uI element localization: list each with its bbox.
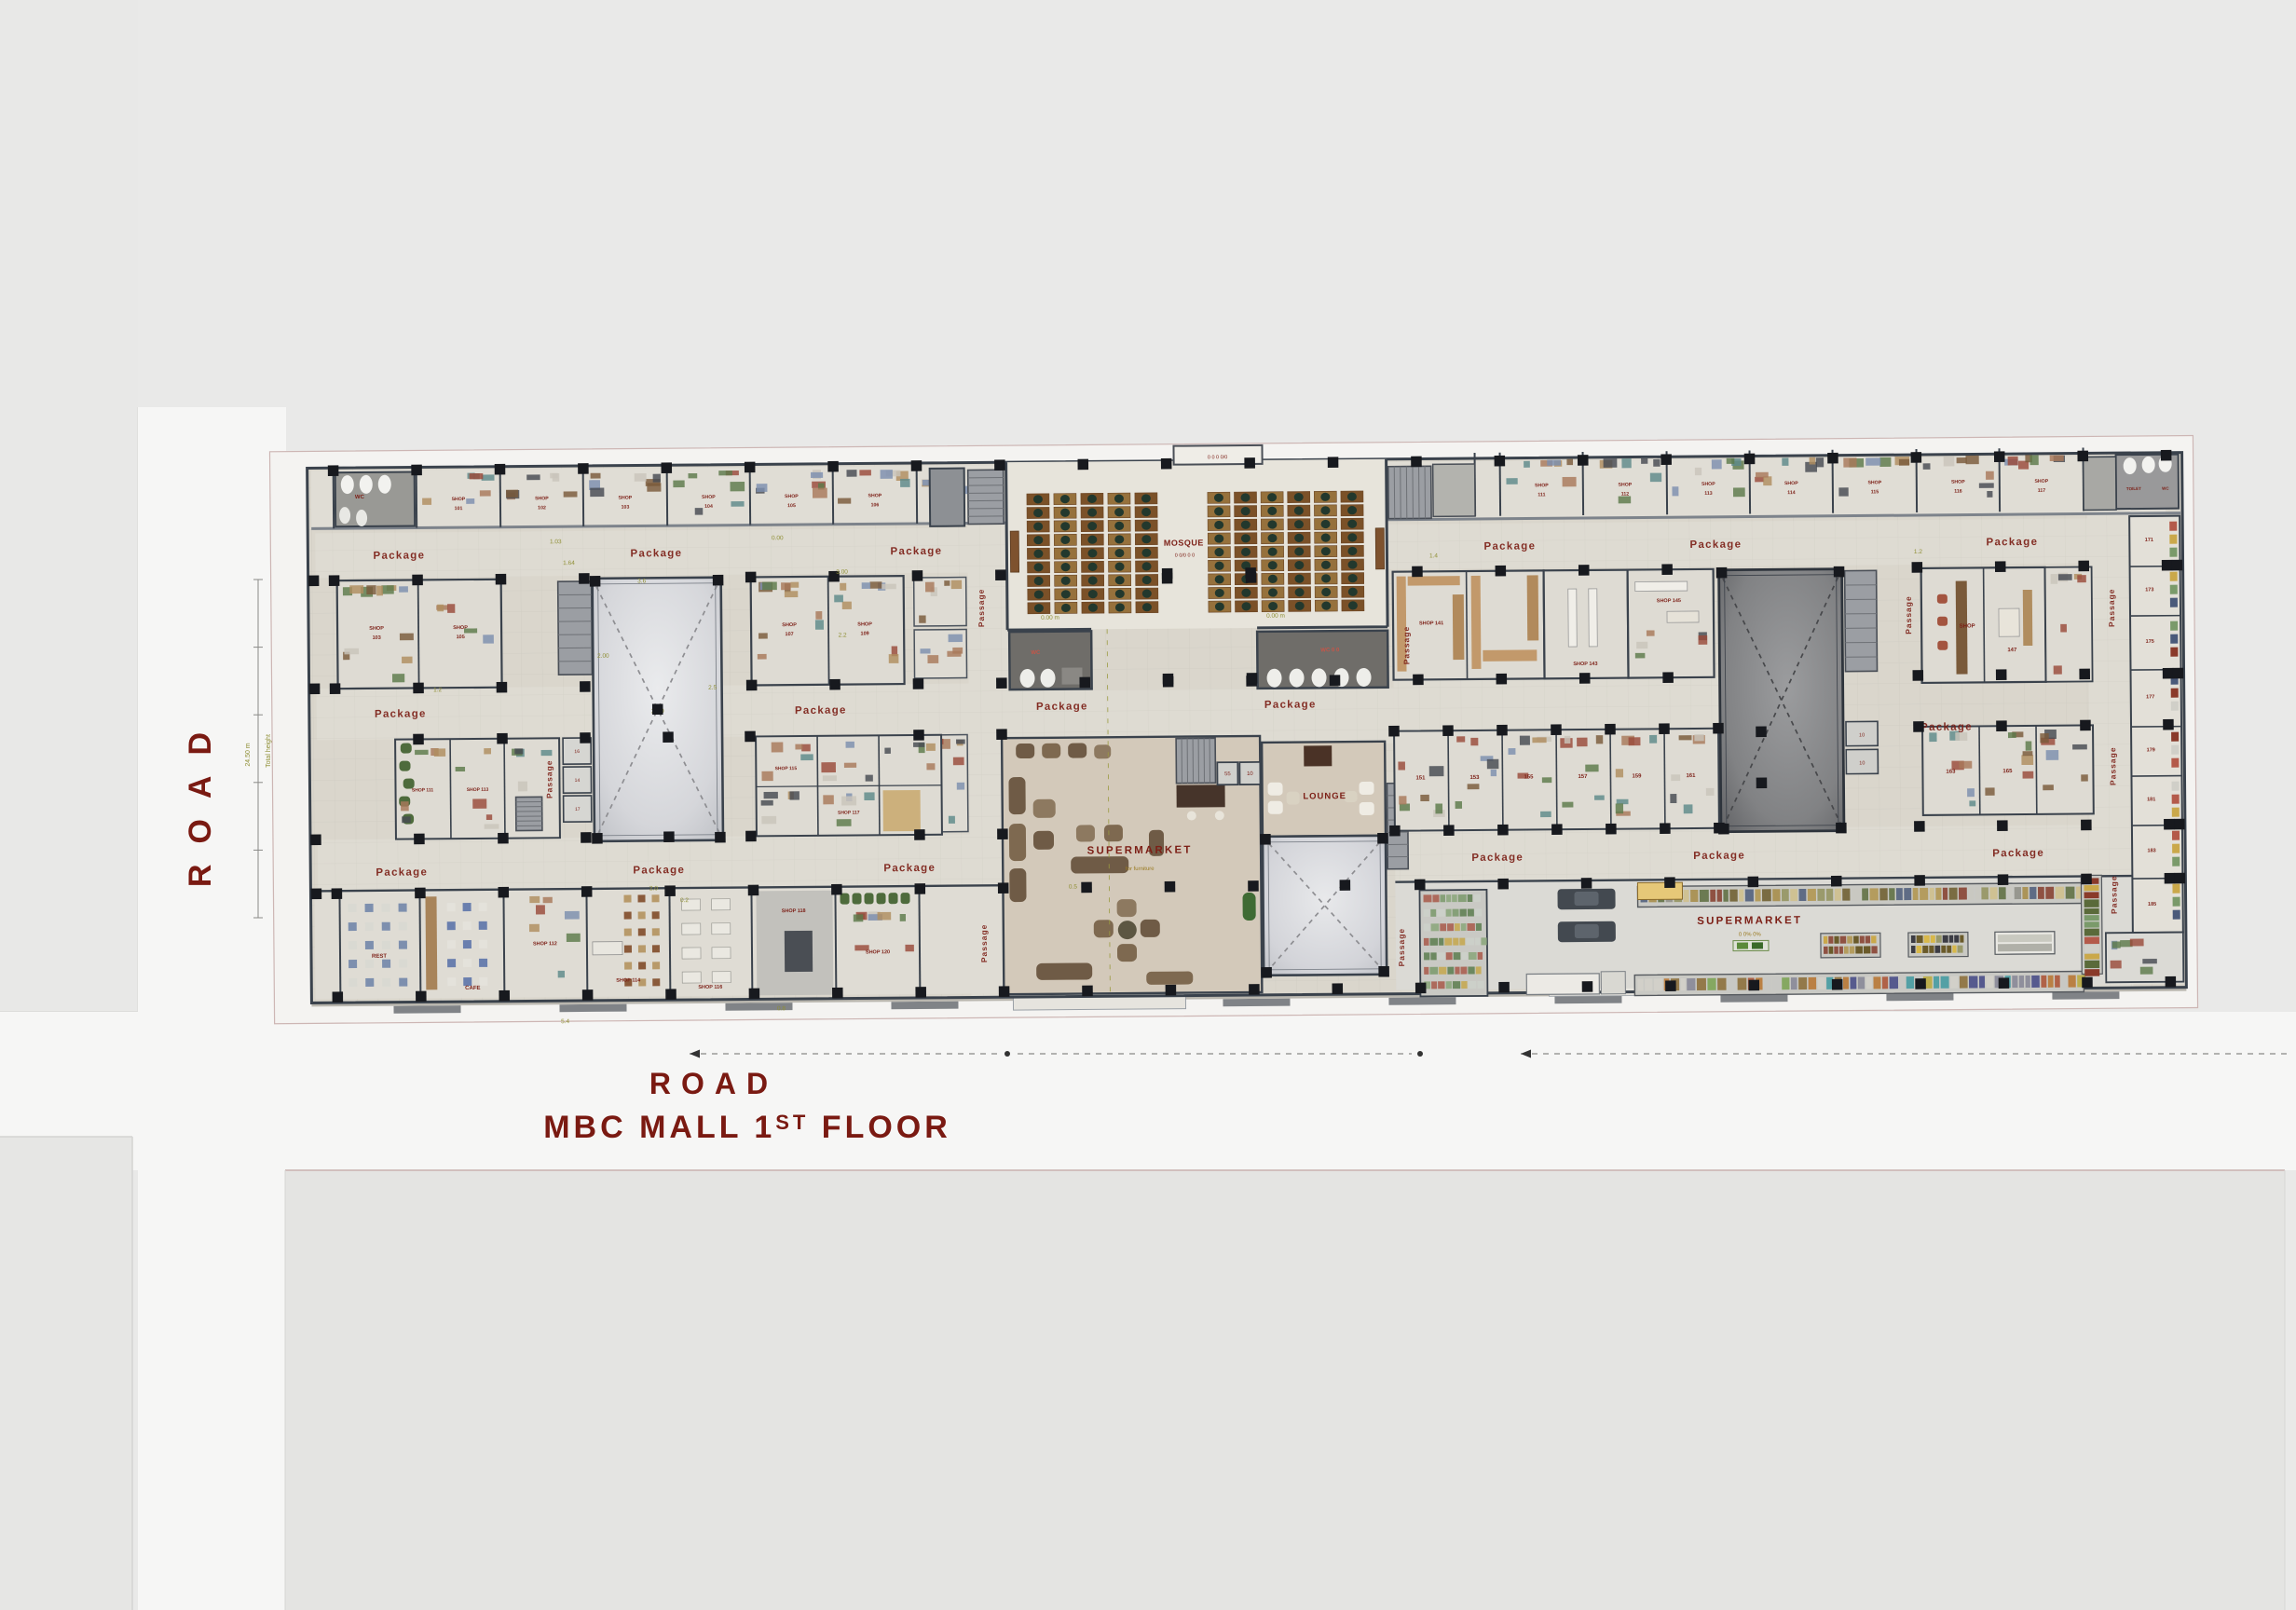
svg-text:Passage: Passage [1904,595,1913,634]
svg-text:102: 102 [538,505,546,511]
svg-text:101: 101 [455,506,463,512]
svg-text:SHOP: SHOP [1701,482,1715,487]
svg-text:SHOP: SHOP [2034,479,2048,484]
svg-text:16: 16 [574,749,580,755]
svg-text:SHOP: SHOP [1951,480,1965,485]
svg-text:SHOP: SHOP [619,496,633,501]
svg-text:163: 163 [1946,770,1956,775]
svg-text:55: 55 [1224,771,1231,777]
svg-text:Total height: Total height [266,734,272,768]
svg-text:109: 109 [861,631,869,636]
svg-text:for furniture: for furniture [1126,866,1155,872]
svg-text:185: 185 [2148,902,2156,907]
svg-text:24.50 m: 24.50 m [245,743,252,766]
svg-text:SHOP 117: SHOP 117 [838,810,860,815]
svg-text:SHOP: SHOP [868,493,882,498]
svg-text:SHOP 145: SHOP 145 [1657,598,1681,604]
svg-text:1.2: 1.2 [433,687,442,693]
svg-text:103: 103 [373,635,381,641]
svg-text:SHOP: SHOP [1618,483,1632,488]
svg-text:0 0% 0%: 0 0% 0% [1739,932,1762,937]
svg-text:Package: Package [376,866,428,878]
svg-text:161: 161 [1686,773,1696,779]
svg-text:SHOP 113: SHOP 113 [467,787,489,793]
svg-text:0.00 m: 0.00 m [1041,615,1059,621]
svg-text:SHOP 118: SHOP 118 [782,908,806,914]
svg-text:0 0/0 0 0: 0 0/0 0 0 [1175,553,1195,558]
svg-text:Package: Package [1986,537,2038,548]
svg-text:Passage: Passage [977,589,986,628]
svg-text:Passage: Passage [2107,588,2116,627]
svg-text:105: 105 [787,503,796,509]
svg-text:SHOP: SHOP [1867,480,1881,485]
svg-text:171: 171 [2145,538,2153,543]
svg-text:114: 114 [1787,490,1796,496]
svg-text:17: 17 [575,807,581,812]
svg-text:115: 115 [1871,489,1879,495]
svg-text:1.2: 1.2 [1914,549,1922,555]
svg-text:Package: Package [1036,701,1088,712]
svg-text:117: 117 [2038,488,2046,494]
svg-text:104: 104 [704,504,713,510]
svg-text:SHOP: SHOP [782,622,797,628]
svg-text:14: 14 [575,778,581,784]
svg-text:183: 183 [2148,848,2156,853]
svg-text:Package: Package [1264,699,1317,710]
svg-text:2.5: 2.5 [708,685,717,691]
svg-text:SUPERMARKET: SUPERMARKET [1087,845,1193,857]
svg-text:5.4: 5.4 [561,1018,569,1025]
svg-text:112: 112 [1621,492,1630,498]
svg-text:153: 153 [1469,775,1480,781]
svg-text:Package: Package [633,865,685,876]
svg-text:Package: Package [1471,853,1524,864]
svg-text:2.00: 2.00 [597,653,609,660]
svg-text:SHOP 115: SHOP 115 [775,766,798,771]
svg-text:111: 111 [1537,492,1545,498]
svg-text:REST: REST [372,954,387,960]
svg-text:2.0: 2.0 [649,885,658,892]
svg-text:113: 113 [1704,491,1713,497]
svg-text:ROAD: ROAD [183,712,218,887]
svg-text:SHOP: SHOP [857,621,872,627]
svg-text:SHOP 112: SHOP 112 [533,941,557,947]
svg-text:SUPERMARKET: SUPERMARKET [1697,915,1802,927]
svg-text:Passage: Passage [1401,626,1411,665]
svg-text:1.03: 1.03 [550,539,562,545]
svg-text:SHOP 120: SHOP 120 [866,949,890,955]
svg-text:TOILET: TOILET [2126,486,2141,491]
svg-text:106: 106 [871,502,880,508]
svg-text:SHOP 141: SHOP 141 [1419,621,1443,626]
svg-text:0.5: 0.5 [1069,884,1077,891]
svg-text:Package: Package [890,546,942,557]
svg-text:Package: Package [630,548,682,559]
svg-text:0.8: 0.8 [777,1005,786,1012]
svg-text:Package: Package [1992,848,2044,859]
svg-text:103: 103 [622,505,630,511]
svg-text:ROAD: ROAD [649,1067,778,1100]
svg-text:2.2: 2.2 [839,633,847,639]
svg-text:3.6: 3.6 [637,578,646,584]
svg-text:116: 116 [1954,489,1962,495]
svg-text:10: 10 [1859,760,1865,766]
svg-text:3.00: 3.00 [836,569,848,576]
svg-text:Package: Package [795,705,847,716]
svg-text:165: 165 [2002,769,2013,774]
svg-text:SHOP: SHOP [452,497,466,502]
svg-text:157: 157 [1578,774,1588,780]
svg-text:CAFE: CAFE [465,986,480,991]
svg-text:SHOP: SHOP [1784,481,1798,486]
svg-text:179: 179 [2147,747,2155,753]
svg-text:SHOP: SHOP [785,494,799,499]
svg-text:MBC MALL 1ST FLOOR: MBC MALL 1ST FLOOR [543,1110,951,1145]
svg-text:Package: Package [1689,539,1742,551]
svg-text:Package: Package [883,863,936,874]
svg-text:0 0 0 0/0: 0 0 0 0/0 [1208,455,1227,460]
svg-text:0.00: 0.00 [772,535,784,541]
svg-text:159: 159 [1632,773,1642,779]
svg-text:WC 0 0: WC 0 0 [1320,648,1340,653]
svg-text:Passage: Passage [1397,928,1406,967]
svg-text:SHOP 143: SHOP 143 [1573,662,1597,667]
svg-text:SHOP: SHOP [1960,623,1975,629]
svg-text:175: 175 [2146,639,2154,645]
svg-text:107: 107 [786,632,794,637]
svg-text:WC: WC [2162,486,2169,491]
svg-text:Package: Package [373,550,425,561]
svg-text:Passage: Passage [979,924,989,963]
svg-text:SHOP: SHOP [1535,483,1549,488]
svg-text:Passage: Passage [2108,746,2117,785]
svg-text:SHOP 111: SHOP 111 [412,787,434,793]
svg-text:177: 177 [2146,694,2154,700]
svg-text:1.64: 1.64 [563,560,575,566]
svg-text:SHOP 114: SHOP 114 [616,977,641,983]
svg-text:Package: Package [375,708,427,719]
svg-text:Passage: Passage [544,759,553,798]
svg-text:Package: Package [1483,540,1536,552]
svg-text:LOUNGE: LOUNGE [1303,791,1346,801]
svg-text:Package: Package [1920,721,1973,732]
svg-text:WC: WC [355,495,365,500]
svg-text:0.2: 0.2 [680,897,689,904]
svg-text:0.00 m: 0.00 m [1266,613,1285,620]
svg-text:SHOP: SHOP [702,495,716,500]
svg-text:SHOP: SHOP [535,496,549,501]
svg-text:147: 147 [2007,648,2017,653]
svg-text:173: 173 [2145,587,2153,593]
svg-text:SHOP 116: SHOP 116 [698,985,722,990]
svg-text:Passage: Passage [2109,875,2118,914]
svg-text:WC: WC [1031,650,1041,656]
svg-text:155: 155 [1524,774,1534,780]
svg-text:Package: Package [1693,851,1745,862]
svg-text:181: 181 [2147,797,2155,802]
svg-text:10: 10 [1859,732,1865,738]
svg-text:151: 151 [1415,775,1426,781]
svg-text:1.4: 1.4 [1429,553,1438,559]
svg-text:SHOP: SHOP [369,626,384,632]
svg-text:MOSQUE: MOSQUE [1164,538,1204,547]
svg-text:105: 105 [457,634,465,640]
svg-text:10: 10 [1247,771,1253,777]
